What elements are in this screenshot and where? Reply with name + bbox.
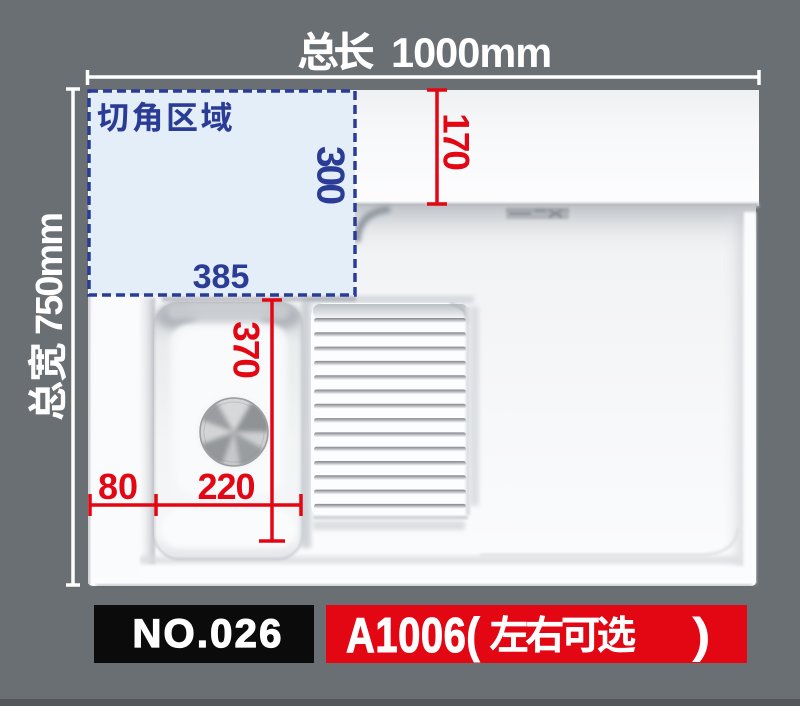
svg-text:): ) [692, 608, 711, 663]
svg-text:1000mm: 1000mm [391, 29, 551, 76]
svg-text:A1006(: A1006( [346, 609, 480, 663]
svg-text:370: 370 [226, 321, 267, 378]
svg-text:385: 385 [193, 258, 250, 296]
svg-text:80: 80 [98, 466, 138, 507]
svg-text:300: 300 [309, 146, 352, 204]
svg-text:750mm: 750mm [29, 214, 71, 335]
svg-text:NO.026: NO.026 [132, 612, 283, 656]
svg-text:170: 170 [436, 113, 477, 170]
svg-text:220: 220 [197, 466, 254, 507]
